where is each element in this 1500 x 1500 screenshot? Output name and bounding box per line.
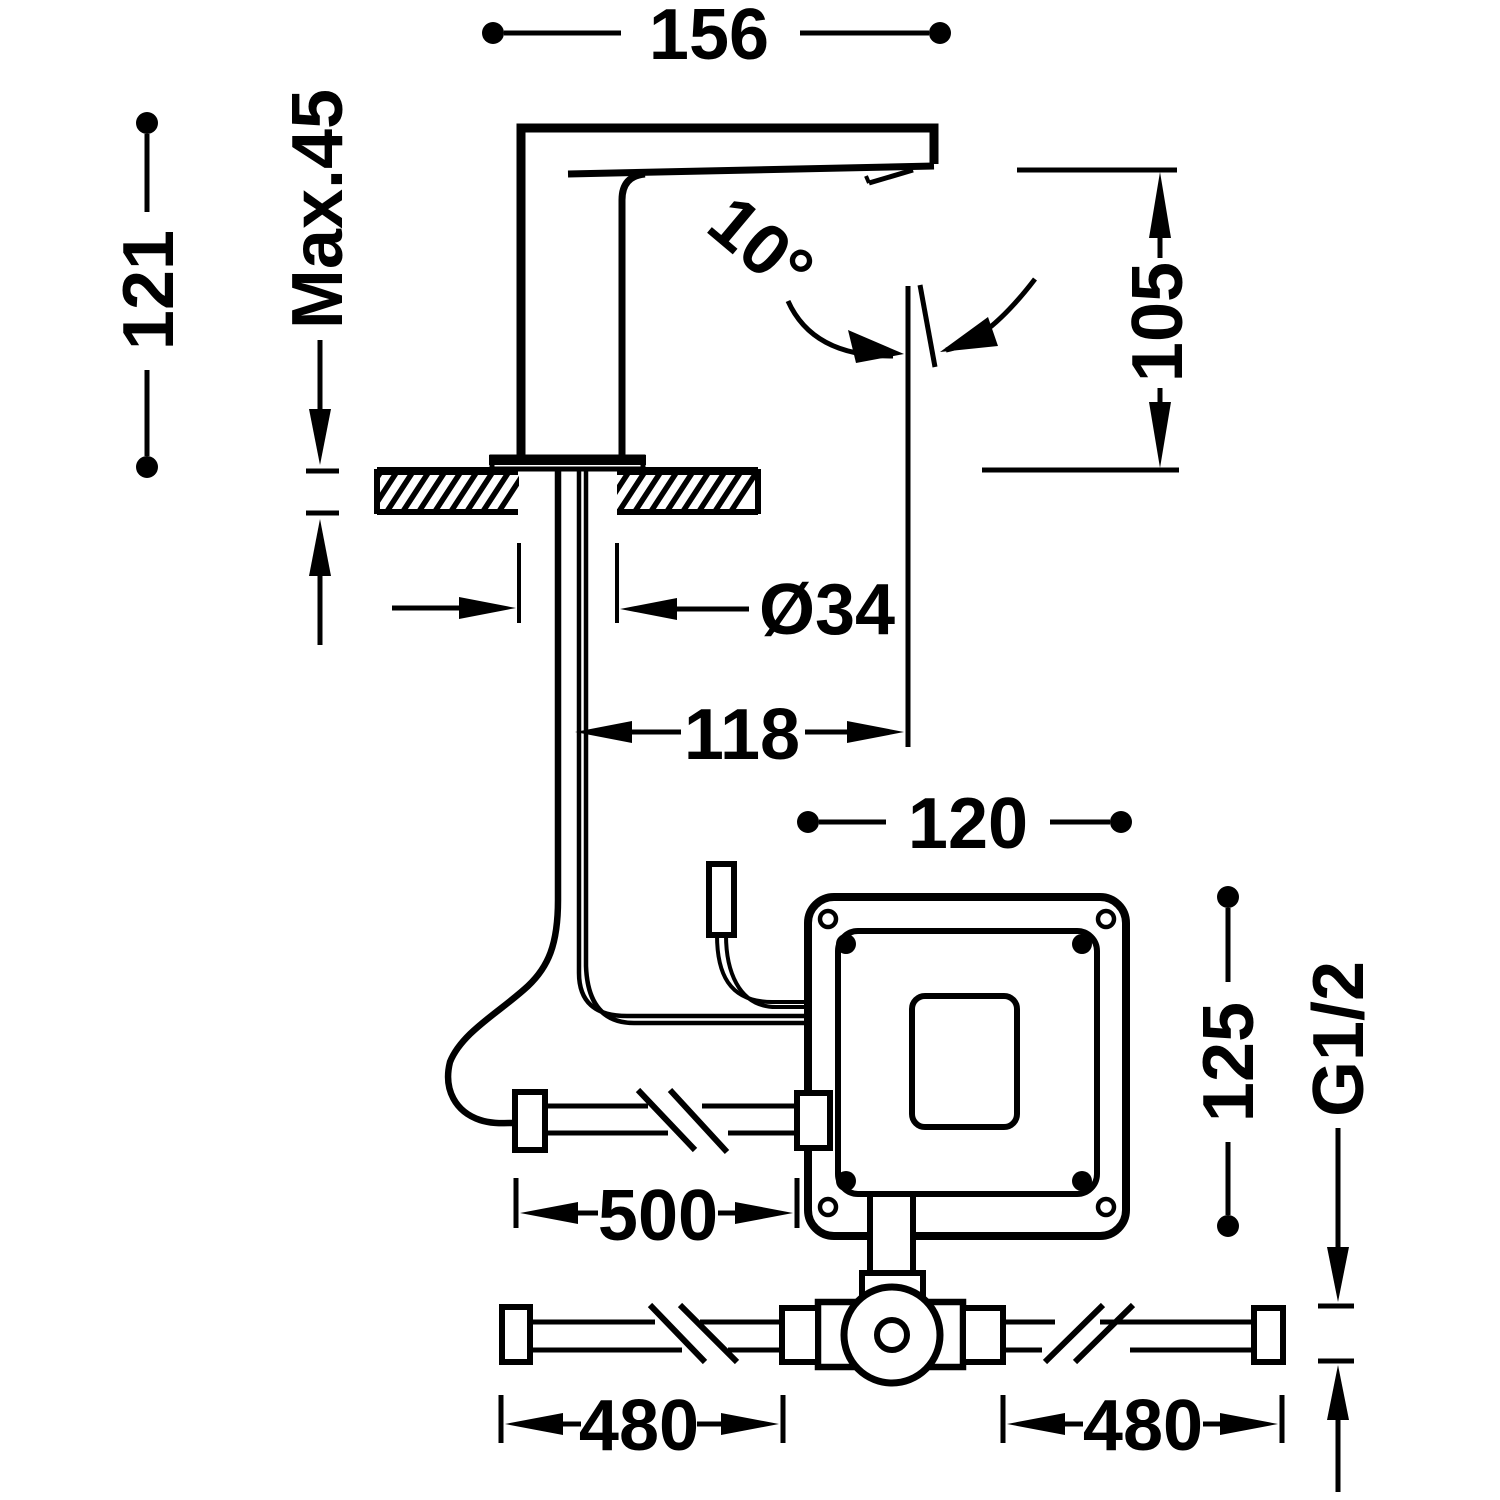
dimension-pipe-right-length: 480 bbox=[1003, 1386, 1282, 1466]
faucet-installation-diagram: 156 121 Max.45 bbox=[0, 0, 1500, 1500]
valve-right-connector bbox=[963, 1308, 1003, 1362]
supply-pipe-right bbox=[1003, 1305, 1283, 1362]
box-outlet-gap bbox=[868, 1218, 915, 1240]
pipe-break-mark bbox=[638, 1090, 695, 1150]
dimension-spout-length: 156 bbox=[482, 0, 951, 75]
dimension-pipe-left-length: 480 bbox=[501, 1386, 783, 1466]
dimension-outlet-reach: 118 bbox=[575, 695, 904, 775]
sensor-cable bbox=[709, 864, 809, 1007]
dim-label-121: 121 bbox=[109, 230, 189, 350]
dimension-box-height: 125 bbox=[1189, 886, 1269, 1237]
pipe-break-mark bbox=[650, 1305, 705, 1362]
inlet-pipe bbox=[515, 1090, 797, 1152]
dimension-total-height: 121 bbox=[109, 112, 189, 478]
drawing-canvas: 156 121 Max.45 bbox=[0, 0, 1500, 1500]
dim-label-120: 120 bbox=[908, 784, 1028, 864]
supply-hose bbox=[448, 470, 558, 1123]
dim-label-156: 156 bbox=[649, 0, 769, 75]
corner-screw bbox=[836, 934, 856, 954]
faucet-body bbox=[521, 128, 934, 457]
stream-tilted-line bbox=[920, 285, 935, 367]
dimension-outlet-height: 105 bbox=[982, 170, 1198, 470]
corner-screw bbox=[1072, 1171, 1092, 1191]
pipe-break-mark bbox=[1045, 1305, 1103, 1362]
label-thread-size: G1/2 bbox=[1299, 961, 1379, 1117]
electronics-control-box bbox=[797, 897, 1126, 1273]
pipe-end-cap bbox=[502, 1307, 530, 1362]
pipe-break-mark bbox=[1075, 1305, 1133, 1362]
pipe-break-mark bbox=[670, 1090, 727, 1152]
screw-hole bbox=[820, 1199, 836, 1215]
dimension-box-width: 120 bbox=[797, 784, 1132, 864]
box-inlet-fitting bbox=[797, 1093, 830, 1148]
installation-hole-marks bbox=[519, 543, 617, 623]
stream-angle-annotation: 10° bbox=[693, 181, 1035, 747]
annotation-thread-size: G1/2 bbox=[1299, 961, 1379, 1492]
screw-hole bbox=[1098, 1199, 1114, 1215]
screw-hole bbox=[1098, 911, 1114, 927]
pipe-break-mark bbox=[680, 1305, 737, 1362]
tee-valve-assembly bbox=[782, 1273, 1003, 1383]
dim-label-105: 105 bbox=[1118, 262, 1198, 382]
pipe-end-cap bbox=[1254, 1308, 1283, 1362]
label-max-deck-thickness: Max.45 bbox=[278, 89, 358, 329]
dim-label-500: 500 bbox=[598, 1176, 718, 1256]
cable-connector bbox=[709, 864, 734, 935]
corner-screw bbox=[1072, 934, 1092, 954]
dim-label-125: 125 bbox=[1189, 1002, 1269, 1122]
supply-pipe-left bbox=[502, 1305, 782, 1362]
label-hole-diameter: Ø34 bbox=[759, 570, 895, 650]
dim-label-480-left: 480 bbox=[579, 1386, 699, 1466]
spout-underside bbox=[568, 166, 934, 174]
pipe-end-cap bbox=[515, 1092, 545, 1150]
dim-label-480-right: 480 bbox=[1083, 1386, 1203, 1466]
valve-left-connector bbox=[782, 1308, 818, 1362]
label-stream-angle: 10° bbox=[693, 181, 828, 312]
aerator-outlet bbox=[869, 170, 913, 183]
box-window bbox=[912, 996, 1017, 1127]
annotation-max-deck-thickness: Max.45 bbox=[278, 89, 358, 645]
dimension-hole-diameter: Ø34 bbox=[392, 570, 895, 650]
dimension-cable-run: 500 bbox=[516, 1176, 797, 1256]
corner-screw bbox=[836, 1171, 856, 1191]
dim-label-118: 118 bbox=[684, 695, 800, 775]
screw-hole bbox=[820, 911, 836, 927]
